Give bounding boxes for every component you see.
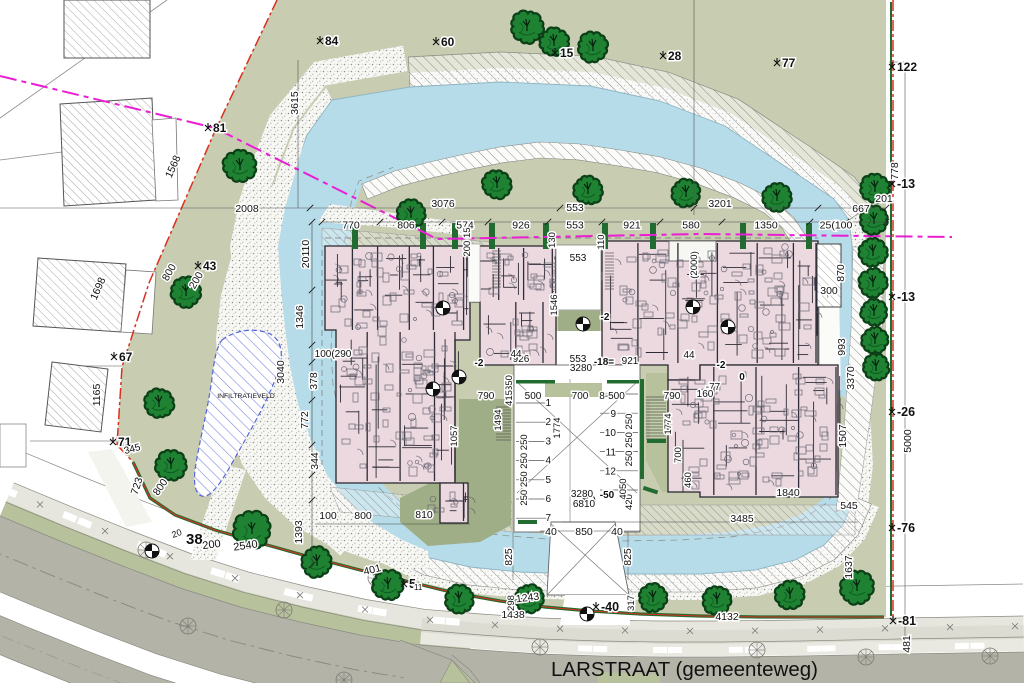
svg-text:-50: -50 xyxy=(600,490,615,501)
svg-text:10: 10 xyxy=(605,428,617,439)
svg-text:870: 870 xyxy=(835,264,847,282)
svg-text:8-500: 8-500 xyxy=(599,391,625,402)
svg-text:1774: 1774 xyxy=(663,413,674,434)
svg-text:545: 545 xyxy=(840,500,858,512)
svg-text:40: 40 xyxy=(611,526,623,538)
svg-text:12: 12 xyxy=(605,467,617,478)
svg-text:-18=: -18= xyxy=(594,357,614,368)
svg-text:-2: -2 xyxy=(717,360,726,371)
svg-text:790: 790 xyxy=(664,391,681,402)
svg-text:850: 850 xyxy=(575,526,593,538)
svg-text:0: 0 xyxy=(739,372,745,383)
svg-text:1546: 1546 xyxy=(549,294,560,315)
svg-text:3280: 3280 xyxy=(570,363,593,374)
svg-text:553: 553 xyxy=(566,220,584,232)
svg-text:28: 28 xyxy=(668,49,682,63)
svg-text:1: 1 xyxy=(545,398,551,409)
svg-text:1057: 1057 xyxy=(449,425,460,446)
svg-text:1350: 1350 xyxy=(754,220,778,232)
svg-text:(2000): (2000) xyxy=(689,251,700,278)
svg-text:778: 778 xyxy=(889,162,901,180)
svg-text:825: 825 xyxy=(503,548,515,566)
svg-text:15: 15 xyxy=(560,46,574,60)
svg-text:200 15: 200 15 xyxy=(462,227,473,256)
svg-text:40: 40 xyxy=(545,526,557,538)
svg-text:122: 122 xyxy=(897,60,917,74)
svg-text:1637: 1637 xyxy=(843,555,855,579)
svg-text:3370: 3370 xyxy=(845,366,857,390)
svg-text:481: 481 xyxy=(901,635,913,653)
svg-text:553: 553 xyxy=(570,253,587,264)
svg-text:INFILTRATIEVELD: INFILTRATIEVELD xyxy=(217,393,275,400)
svg-text:6810: 6810 xyxy=(573,499,596,510)
svg-text:500: 500 xyxy=(525,391,542,402)
svg-text:1507: 1507 xyxy=(837,424,849,448)
svg-text:43: 43 xyxy=(203,259,217,273)
svg-text:100: 100 xyxy=(319,510,337,522)
svg-text:3076: 3076 xyxy=(431,198,455,210)
svg-text:11: 11 xyxy=(606,447,617,458)
svg-text:1346: 1346 xyxy=(294,305,306,329)
svg-text:250 250 250: 250 250 250 xyxy=(624,414,635,467)
svg-text:-26: -26 xyxy=(897,405,915,419)
svg-text:667: 667 xyxy=(852,203,870,215)
svg-text:100(290: 100(290 xyxy=(315,349,352,360)
svg-text:415: 415 xyxy=(504,390,515,406)
svg-text:800: 800 xyxy=(354,510,372,522)
svg-text:1774: 1774 xyxy=(552,417,563,438)
svg-text:110: 110 xyxy=(596,234,607,249)
svg-text:4050: 4050 xyxy=(618,478,629,499)
svg-text:60: 60 xyxy=(441,35,455,49)
svg-text:460: 460 xyxy=(683,472,694,488)
svg-text:378: 378 xyxy=(308,372,320,390)
svg-text:LARSTRAAT (gemeenteweg): LARSTRAAT (gemeenteweg) xyxy=(551,658,818,681)
svg-text:921: 921 xyxy=(622,356,639,367)
svg-text:4132: 4132 xyxy=(715,611,739,623)
svg-text:25(100: 25(100 xyxy=(820,220,853,232)
svg-text:993: 993 xyxy=(836,338,848,356)
svg-text:44: 44 xyxy=(683,350,695,361)
svg-text:-81: -81 xyxy=(898,614,916,628)
svg-text:926: 926 xyxy=(512,220,530,232)
svg-text:38: 38 xyxy=(186,531,203,548)
svg-text:20110: 20110 xyxy=(300,240,312,269)
svg-text:3: 3 xyxy=(545,436,551,447)
svg-text:700: 700 xyxy=(673,447,684,463)
svg-text:1840: 1840 xyxy=(776,487,800,499)
svg-text:344: 344 xyxy=(309,452,321,470)
svg-text:11: 11 xyxy=(414,583,423,592)
svg-text:2008: 2008 xyxy=(235,203,259,215)
svg-text:4: 4 xyxy=(545,456,551,467)
svg-text:77: 77 xyxy=(782,56,796,70)
svg-text:200: 200 xyxy=(202,538,222,552)
svg-text:700: 700 xyxy=(572,391,589,402)
svg-text:350: 350 xyxy=(504,375,515,391)
svg-text:44: 44 xyxy=(510,349,522,360)
svg-text:1393: 1393 xyxy=(293,520,305,544)
svg-text:5: 5 xyxy=(545,475,551,486)
svg-text:160: 160 xyxy=(697,389,714,400)
svg-text:772: 772 xyxy=(299,411,311,429)
svg-text:84: 84 xyxy=(325,34,339,48)
svg-text:130: 130 xyxy=(547,232,558,248)
svg-text:3040: 3040 xyxy=(275,360,287,384)
svg-text:201: 201 xyxy=(875,193,893,205)
svg-text:553: 553 xyxy=(566,202,584,214)
svg-text:-2: -2 xyxy=(601,312,610,323)
svg-text:250 250 250 250: 250 250 250 250 xyxy=(519,434,530,505)
svg-text:317: 317 xyxy=(626,595,637,611)
svg-text:300: 300 xyxy=(820,285,838,297)
svg-text:6: 6 xyxy=(545,494,551,505)
svg-text:580: 580 xyxy=(682,220,700,232)
svg-text:-76: -76 xyxy=(897,521,915,535)
svg-text:81: 81 xyxy=(213,121,227,135)
svg-text:921: 921 xyxy=(623,220,641,232)
svg-text:-40: -40 xyxy=(601,600,619,614)
svg-text:3615: 3615 xyxy=(289,91,301,115)
svg-text:806: 806 xyxy=(397,220,415,232)
svg-text:790: 790 xyxy=(478,391,495,402)
svg-text:2: 2 xyxy=(545,417,551,428)
svg-text:770: 770 xyxy=(342,220,360,232)
svg-text:825: 825 xyxy=(622,548,634,566)
svg-text:3485: 3485 xyxy=(730,513,754,525)
svg-text:-2: -2 xyxy=(475,358,484,369)
svg-text:1165: 1165 xyxy=(91,384,103,407)
svg-text:5000: 5000 xyxy=(902,429,914,453)
svg-text:67: 67 xyxy=(119,350,133,364)
svg-text:3201: 3201 xyxy=(708,198,732,210)
svg-text:9: 9 xyxy=(610,409,616,420)
svg-text:-13: -13 xyxy=(897,290,915,304)
svg-text:1494: 1494 xyxy=(493,409,504,430)
svg-text:810: 810 xyxy=(415,509,433,521)
